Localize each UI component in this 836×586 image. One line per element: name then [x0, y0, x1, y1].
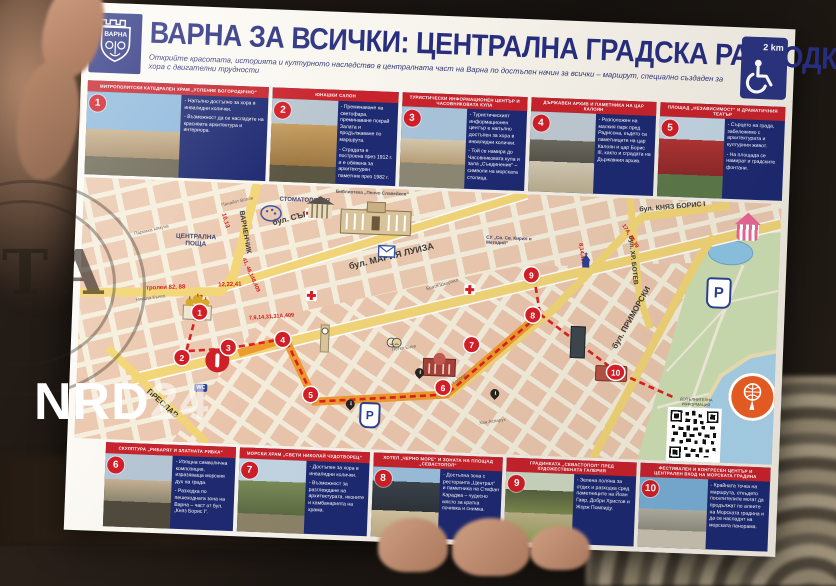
stop-number-badge: 4 [532, 114, 550, 132]
stop-description: - Туристическият информационен център е … [464, 109, 527, 191]
stop-description: - Преминаване на светофара, преминаване … [335, 101, 398, 186]
stop-description: - Сърцето на града, забележимо с архитек… [722, 119, 785, 201]
stop-photo-theatre: 5 [657, 116, 725, 198]
stop-number-badge: 10 [642, 480, 660, 498]
stop-description: - Разположен на малкия парк пред Радисон… [593, 114, 656, 196]
stop-description: - Крайната точка на маршрута, откъдето п… [705, 479, 770, 551]
stop-number-badge: 7 [241, 461, 259, 479]
info-pin-icon: i [494, 391, 496, 397]
stop-number-badge: 1 [89, 94, 107, 112]
stop-bullet: - Той се намира до Часовниковата кула и … [467, 148, 522, 183]
stop-card-2: ЮНАШКИ САЛОН 2 - Преминаване на светофар… [270, 87, 399, 186]
map-leaflet: ВАРНА ВАРНА ЗА ВСИЧКИ: ЦЕНТРАЛНА ГРАДСКА… [64, 2, 796, 557]
stop-bullet [709, 532, 765, 534]
stop-bullet: - Възможност да се насладите на красиват… [183, 114, 265, 137]
place-label-central-post: ЦЕНТРАЛНА ПОЩА [170, 232, 223, 248]
palace-building-drawing [338, 199, 413, 238]
clock-tower-drawing [320, 324, 330, 352]
stop-photo-archive: 4 [528, 111, 596, 193]
stop-photo-congress: 10 [638, 477, 708, 549]
stop-bullet: - Крайната точка на маршрута, откъдето п… [709, 483, 767, 531]
stop-bullet: - Разходка по пешеходната зона на Варна … [174, 488, 231, 517]
stop-photo-infocenter: 3 [399, 106, 467, 188]
palette-icon [259, 204, 284, 223]
stop-card-7: МОРСКИ ХРАМ „СВЕТИ НИКОЛАЙ ЧУДОТВОРЕЦ“ 7… [237, 447, 370, 536]
stop-bullet: - На площада се намират и градските фонт… [726, 151, 781, 173]
stop-bullet: - Възможност за разглеждане на архитекту… [308, 480, 366, 515]
transit-label: 12,22,41 [218, 282, 242, 289]
wheelchair-route-badge: 2 km [740, 36, 788, 100]
stop-card-4: ДЪРЖАВЕН АРХИВ И ПАМЕТНИКА НА ЦАР КАЛОЯН… [528, 97, 657, 196]
stop-description: - Достъпен за хора в инвалидни колички. … [304, 461, 369, 536]
stop-bullet: - Зелена поляна за отдих и разходка сред… [576, 477, 634, 512]
stop-bullet: - Сърцето на града, забележимо с архитек… [727, 122, 782, 150]
stop-bullet: - Достъпна зона с ресторанта „Централ“ и… [442, 472, 500, 514]
stop-number-badge: 9 [508, 475, 526, 493]
info-pin-icon: i [349, 401, 351, 407]
qr-code [666, 407, 722, 463]
stop-bullet: - Преминаване на светофара, преминаване … [339, 104, 395, 146]
finger [378, 518, 448, 572]
wheelchair-icon [743, 55, 779, 96]
stop-card-10: ФЕСТИВАЛЕН И КОНГРЕСЕН ЦЕНТЪР И ЦЕНТРАЛЕ… [638, 463, 771, 552]
hotel-tower-drawing [570, 326, 586, 359]
church-icon [579, 252, 593, 268]
stop-card-3: ТУРИСТИЧЕСКИ ИНФОРМАЦИОНЕН ЦЕНТЪР И ЧАСО… [399, 92, 528, 191]
news-agency-watermark: ТА [2, 236, 111, 309]
place-label-school: СУ „Св. Св. Кирил и Методий“ [486, 235, 534, 247]
stop-card-6: СКУЛПТУРА „РИБАРЯТ И ЗЛАТНАТА РИБКА“ 6 -… [103, 442, 236, 531]
stop-photo-cathedral: 1 [84, 91, 181, 178]
stop-photo-sea-temple: 7 [237, 458, 307, 534]
stop-card-1: МИТРОПОЛИТСКИ КАТЕДРАЛЕН ХРАМ „УСПЕНИЕ Б… [84, 80, 269, 181]
parking-icon: P [706, 277, 732, 309]
finger [452, 518, 530, 576]
stop-number-badge: 3 [403, 109, 421, 127]
qr-code-block: ДОПЪЛНИТЕЛНА ИНФОРМАЦИЯ [666, 396, 724, 460]
info-pin-icon: i [418, 370, 420, 376]
stop-card-5: ПЛОЩАД „НЕЗАВИСИМОСТ“ И ДРАМАТИЧНИЯ ТЕАТ… [657, 102, 786, 201]
stop-photo-salon: 2 [270, 98, 338, 183]
channel-watermark: NRD24 [34, 376, 210, 428]
stop-bullet: - Напълно достъпно за хора в инвалидни к… [184, 98, 266, 114]
stop-bullet: - Изящна символична композиция, изразява… [175, 459, 232, 488]
route-length: 2 km [763, 42, 784, 53]
stop-description: - Изящна символична композиция, изразява… [170, 456, 235, 531]
channel-watermark-text: NRD [34, 373, 150, 431]
post-office-envelope-icon [377, 244, 395, 258]
theatre-masks-icon [386, 337, 402, 349]
medical-cross-icon [464, 284, 475, 295]
stop-description: - Напълно достъпно за хора в инвалидни к… [179, 95, 269, 181]
stop-bullet [442, 515, 498, 517]
stop-bullet [597, 166, 651, 168]
stop-number-badge: 2 [274, 101, 292, 119]
qr-caption: ДОПЪЛНИТЕЛНА ИНФОРМАЦИЯ [668, 396, 724, 408]
stop-number-badge: 6 [107, 456, 125, 474]
carousel-icon [734, 212, 761, 243]
stop-bullet: - Сградата е построена през 1912 г. и е … [338, 147, 393, 182]
drama-theatre-drawing [421, 350, 458, 377]
transit-label: тролеи 82, 88 [146, 284, 185, 291]
stop-bullet: - Достъпен за хора в инвалидни колички. [309, 464, 366, 479]
crest-text: ВАРНА [104, 31, 127, 39]
classical-building-drawing [305, 196, 336, 221]
stop-bullet: - Разположен на малкия парк пред Радисон… [597, 117, 653, 165]
stop-bullet [576, 513, 632, 515]
parking-icon: P [359, 402, 381, 429]
channel-watermark-number: 24 [150, 373, 210, 431]
stop-photo-sculpture: 6 [103, 453, 173, 529]
stop-bullet: - Туристическият информационен център е … [468, 112, 523, 147]
finger [530, 526, 590, 570]
stop-number-badge: 8 [374, 470, 392, 488]
medical-cross-icon [306, 290, 317, 301]
stop-number-badge: 5 [661, 119, 679, 137]
